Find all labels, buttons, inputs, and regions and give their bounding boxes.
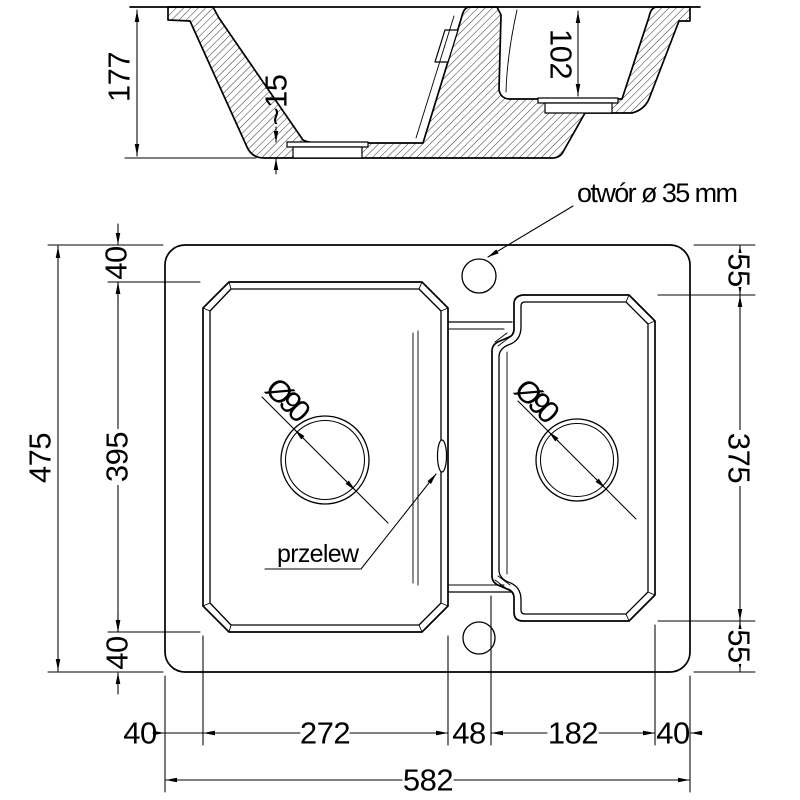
dim-overall-height: 475 [23, 246, 59, 671]
svg-text:177: 177 [102, 52, 137, 102]
svg-text:40: 40 [100, 636, 135, 670]
svg-text:375: 375 [722, 433, 757, 483]
svg-text:102: 102 [544, 29, 579, 79]
drain-recess-lip-right [538, 98, 618, 103]
dim-right-bowl-height: 375 [722, 295, 757, 621]
svg-text:40: 40 [99, 246, 134, 280]
left-bowl: Ø90 [203, 282, 448, 632]
svg-text:55: 55 [722, 629, 757, 662]
svg-text:182: 182 [548, 716, 598, 751]
right-bowl: Ø90 [492, 295, 655, 621]
sink-outline [165, 245, 690, 672]
tap-hole-top [462, 259, 496, 293]
svg-text:~15: ~15 [259, 74, 294, 125]
drain-recess-lip-left [287, 142, 368, 147]
svg-text:48: 48 [452, 716, 485, 751]
bowl-corner-curve-small [506, 10, 517, 92]
dim-depth-small: 102 [544, 11, 579, 96]
overflow-label: przelew [277, 540, 360, 568]
svg-text:475: 475 [23, 433, 58, 483]
drain-recess-right [545, 103, 612, 113]
drain-recess-left [293, 147, 362, 158]
tap-hole-label: otwór ø 35 mm [577, 178, 738, 208]
drain-label-right: Ø90 [508, 372, 567, 431]
dim-bottom-right-margin: 40 [644, 716, 702, 751]
section-view: 177 ~15 102 [102, 7, 701, 174]
dim-right-top-margin: 55 [722, 245, 757, 295]
dim-right-bowl-width: 182 [492, 716, 654, 751]
svg-text:55: 55 [722, 253, 757, 286]
dim-bottom-left-margin: 40 [123, 716, 215, 751]
dim-left-top-margin: 40 [99, 224, 134, 303]
svg-text:395: 395 [100, 432, 135, 482]
drain-label-left: Ø90 [259, 371, 318, 430]
dim-left-bowl-width: 272 [204, 716, 447, 751]
dim-left-bottom-margin: 40 [100, 611, 135, 694]
dim-overall-width: 582 [166, 763, 689, 798]
technical-drawing-page: 177 ~15 102 [0, 0, 800, 800]
sink-wall-section [168, 7, 690, 158]
bevel-edges-left-bowl [203, 282, 448, 632]
dim-depth-main: 177 [102, 10, 138, 156]
dim-recess-depth: ~15 [259, 74, 294, 174]
svg-text:40: 40 [123, 716, 157, 751]
sink-dimension-drawing: 177 ~15 102 [0, 0, 800, 800]
svg-text:40: 40 [656, 716, 690, 751]
dim-left-bowl-height: 395 [100, 282, 135, 632]
tap-hole-bottom [463, 622, 495, 654]
overflow-hole [438, 440, 447, 472]
divider-edges [449, 322, 512, 592]
plan-view: Ø90 Ø90 [23, 178, 757, 798]
dim-right-bottom-margin: 55 [722, 621, 757, 672]
svg-text:582: 582 [403, 763, 453, 798]
svg-text:272: 272 [300, 716, 350, 751]
